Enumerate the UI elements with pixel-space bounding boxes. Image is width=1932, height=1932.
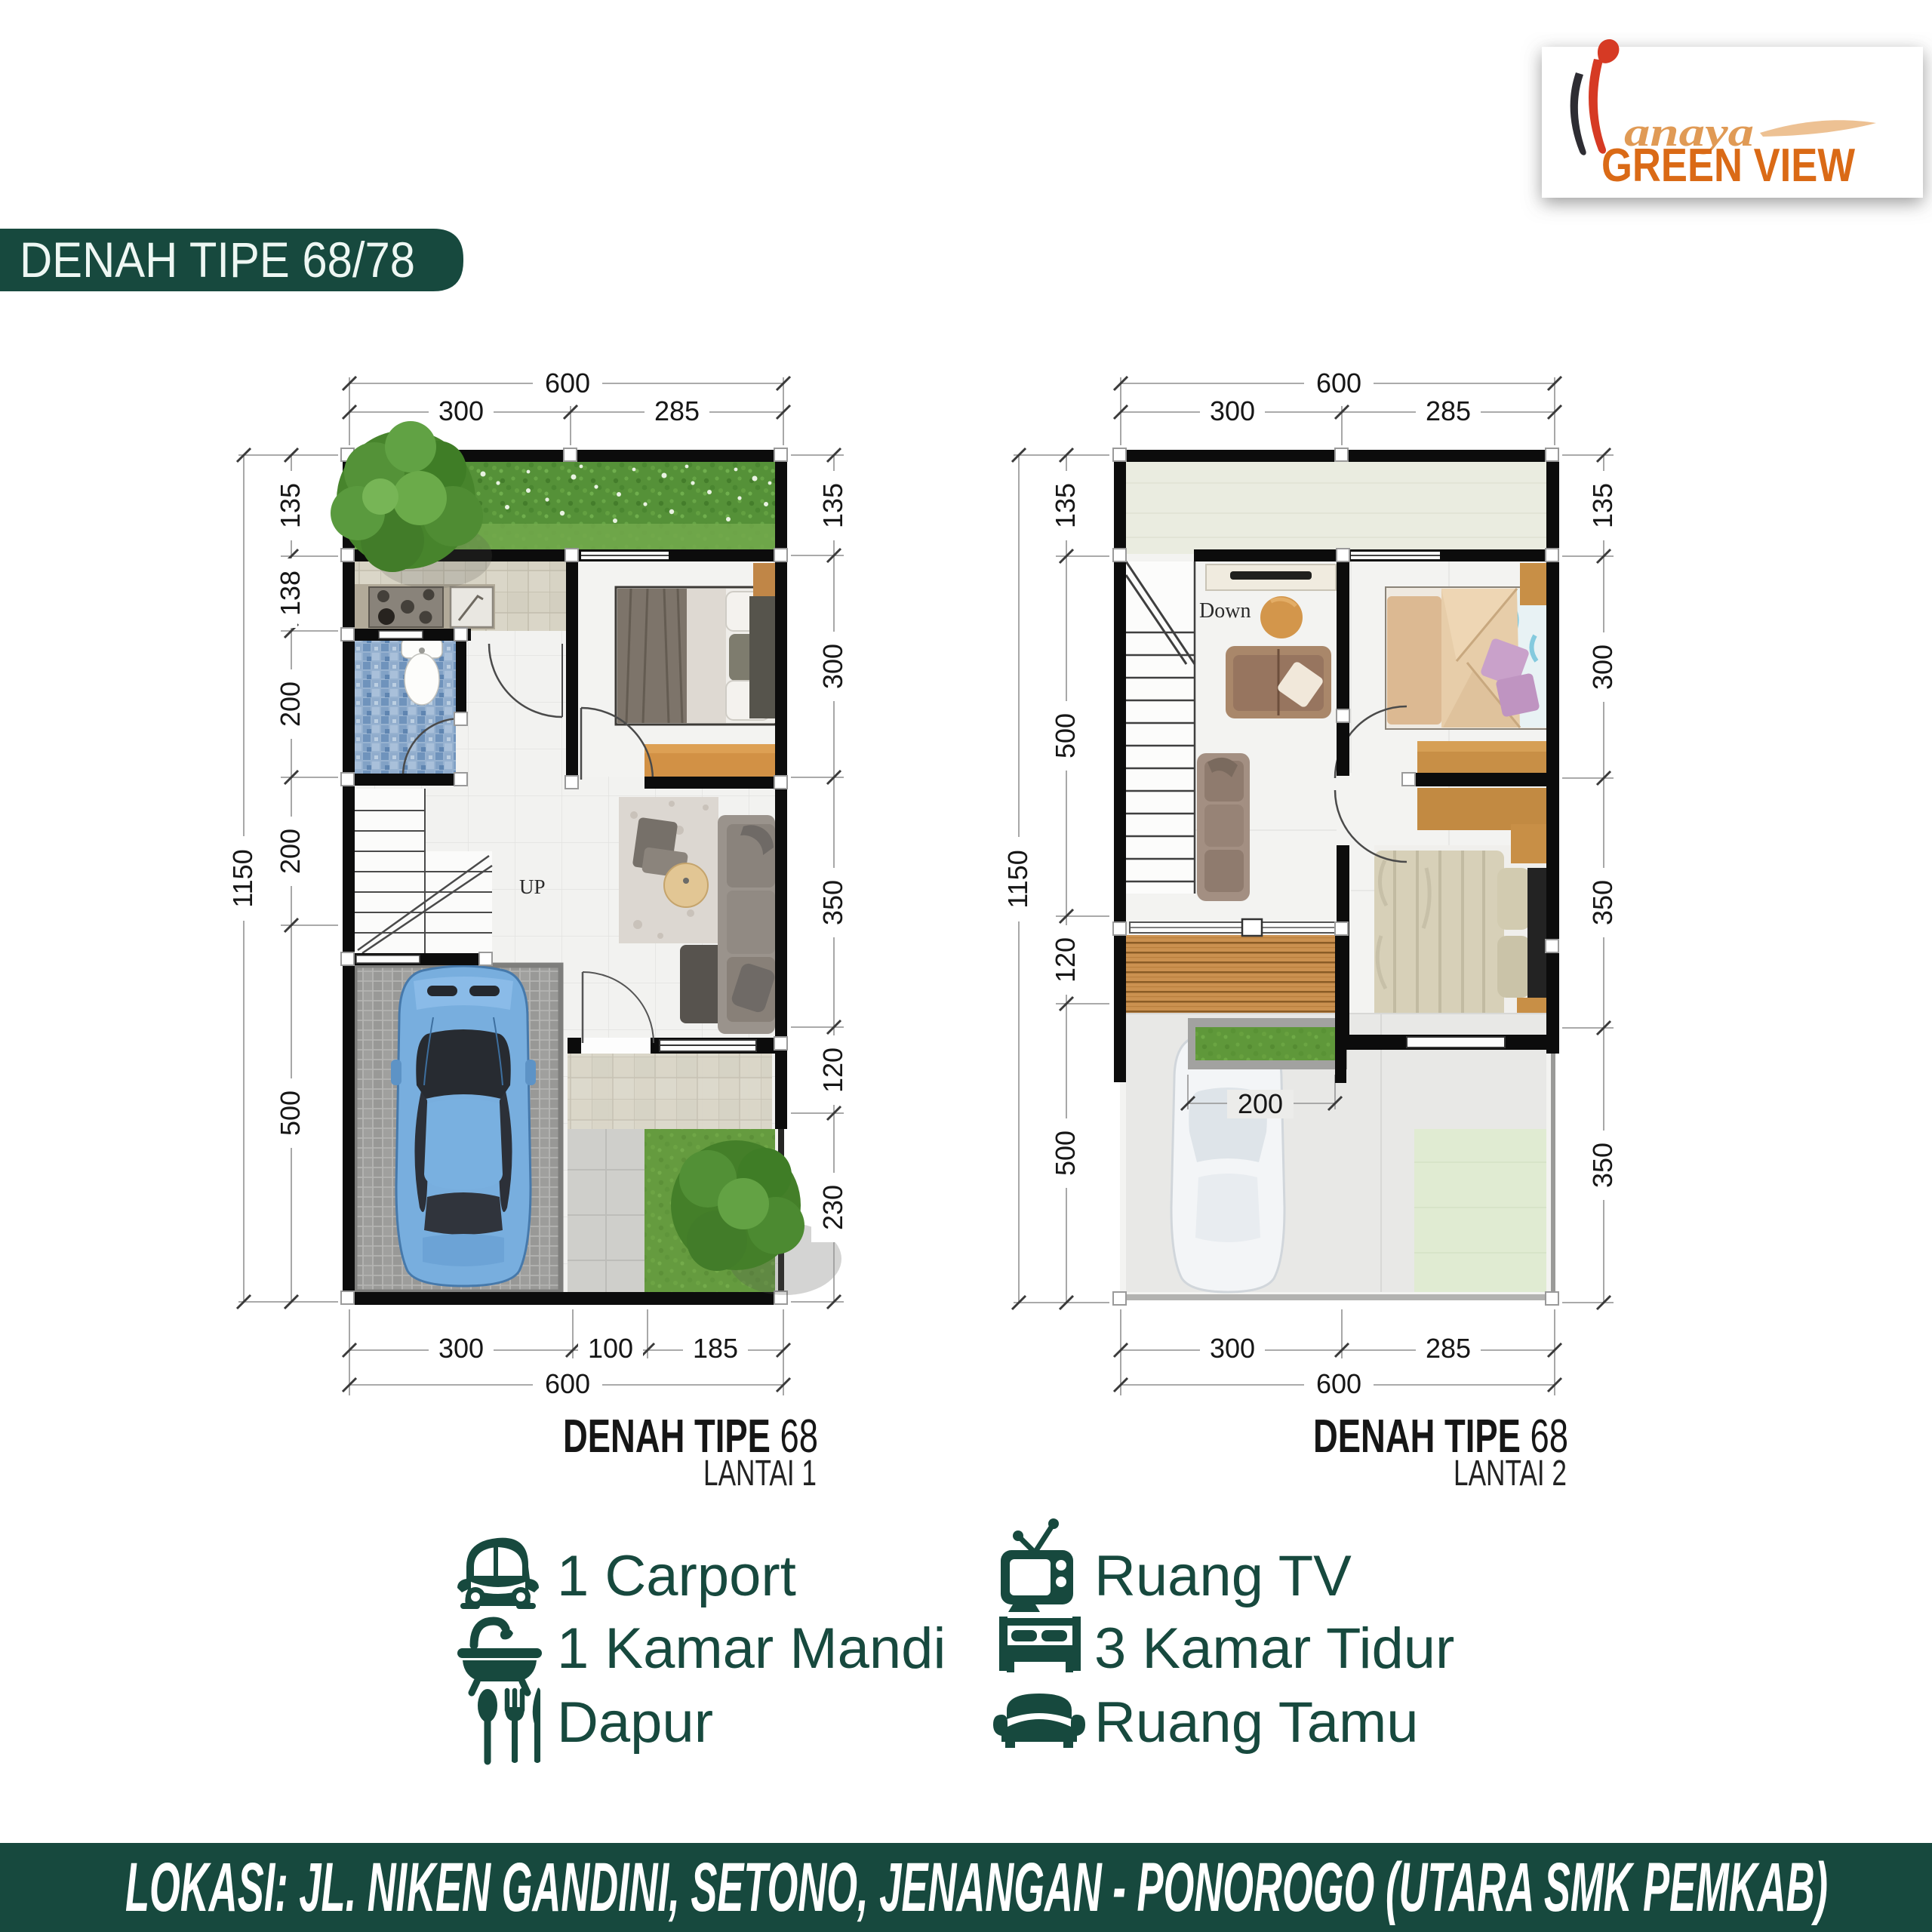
svg-text:DENAH TIPE 68/78: DENAH TIPE 68/78 — [20, 232, 415, 288]
svg-text:120: 120 — [1050, 937, 1081, 983]
svg-text:300: 300 — [438, 395, 484, 426]
svg-text:285: 285 — [654, 395, 700, 426]
svg-text:GREEN VIEW: GREEN VIEW — [1601, 140, 1855, 192]
svg-text:1150: 1150 — [227, 849, 258, 907]
svg-text:Ruang Tamu: Ruang Tamu — [1094, 1690, 1419, 1755]
svg-text:135: 135 — [275, 483, 306, 528]
svg-text:1150: 1150 — [1002, 850, 1033, 908]
svg-text:600: 600 — [545, 368, 590, 398]
svg-text:285: 285 — [1426, 395, 1471, 426]
svg-text:500: 500 — [1050, 1131, 1081, 1176]
svg-text:350: 350 — [1587, 880, 1618, 925]
svg-text:135: 135 — [1587, 483, 1618, 528]
svg-text:285: 285 — [1426, 1333, 1471, 1364]
svg-text:185: 185 — [693, 1333, 738, 1364]
svg-text:500: 500 — [1050, 713, 1081, 758]
svg-text:600: 600 — [545, 1368, 590, 1399]
svg-text:135: 135 — [1050, 483, 1081, 528]
svg-text:LANTAI 1: LANTAI 1 — [703, 1454, 817, 1494]
svg-text:300: 300 — [1587, 645, 1618, 690]
svg-text:200: 200 — [275, 681, 306, 727]
svg-text:300: 300 — [438, 1333, 484, 1364]
svg-text:1 Carport: 1 Carport — [557, 1544, 796, 1608]
svg-text:300: 300 — [1210, 1333, 1255, 1364]
svg-text:300: 300 — [1210, 395, 1255, 426]
svg-text:138: 138 — [275, 571, 306, 616]
svg-text:3 Kamar Tidur: 3 Kamar Tidur — [1094, 1617, 1454, 1681]
svg-text:LOKASI: JL. NIKEN GANDINI, SET: LOKASI: JL. NIKEN GANDINI, SETONO, JENAN… — [125, 1849, 1828, 1926]
svg-text:600: 600 — [1316, 1368, 1361, 1399]
svg-text:135: 135 — [817, 483, 848, 528]
svg-text:Ruang TV: Ruang TV — [1094, 1544, 1352, 1608]
svg-text:500: 500 — [275, 1091, 306, 1136]
svg-text:UP: UP — [519, 875, 546, 898]
svg-text:LANTAI 2: LANTAI 2 — [1454, 1454, 1567, 1494]
svg-text:300: 300 — [817, 644, 848, 689]
svg-text:Down: Down — [1199, 599, 1251, 623]
svg-text:200: 200 — [275, 829, 306, 874]
svg-text:100: 100 — [588, 1333, 633, 1364]
svg-text:Dapur: Dapur — [557, 1690, 713, 1755]
svg-text:350: 350 — [817, 880, 848, 925]
svg-text:600: 600 — [1316, 368, 1361, 398]
svg-text:120: 120 — [817, 1048, 848, 1093]
svg-text:1 Kamar Mandi: 1 Kamar Mandi — [557, 1617, 946, 1681]
svg-text:350: 350 — [1587, 1143, 1618, 1188]
svg-text:200: 200 — [1238, 1088, 1283, 1119]
svg-text:230: 230 — [817, 1185, 848, 1230]
